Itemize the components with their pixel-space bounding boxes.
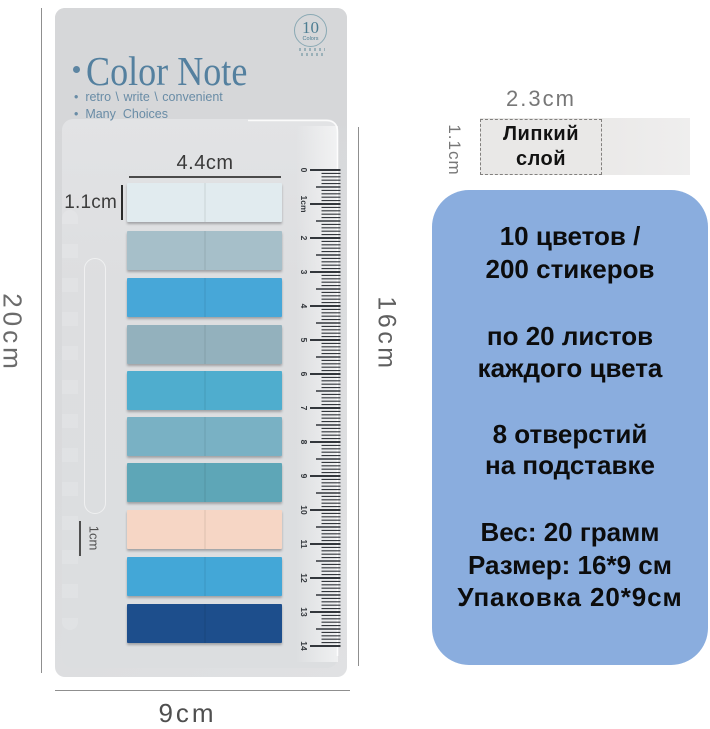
svg-text:0: 0 xyxy=(299,168,309,173)
svg-text:3: 3 xyxy=(299,270,309,275)
svg-text:9: 9 xyxy=(299,474,309,479)
svg-text:1cm: 1cm xyxy=(299,195,309,212)
svg-text:12: 12 xyxy=(299,573,309,583)
svg-text:8: 8 xyxy=(299,440,309,445)
svg-text:13: 13 xyxy=(299,607,309,617)
svg-text:6: 6 xyxy=(299,372,309,377)
svg-text:7: 7 xyxy=(299,406,309,411)
svg-text:10: 10 xyxy=(299,505,309,515)
svg-text:2: 2 xyxy=(299,236,309,241)
svg-text:5: 5 xyxy=(299,338,309,343)
svg-text:11: 11 xyxy=(299,540,309,549)
svg-text:4: 4 xyxy=(299,304,309,309)
svg-text:14: 14 xyxy=(299,641,309,651)
